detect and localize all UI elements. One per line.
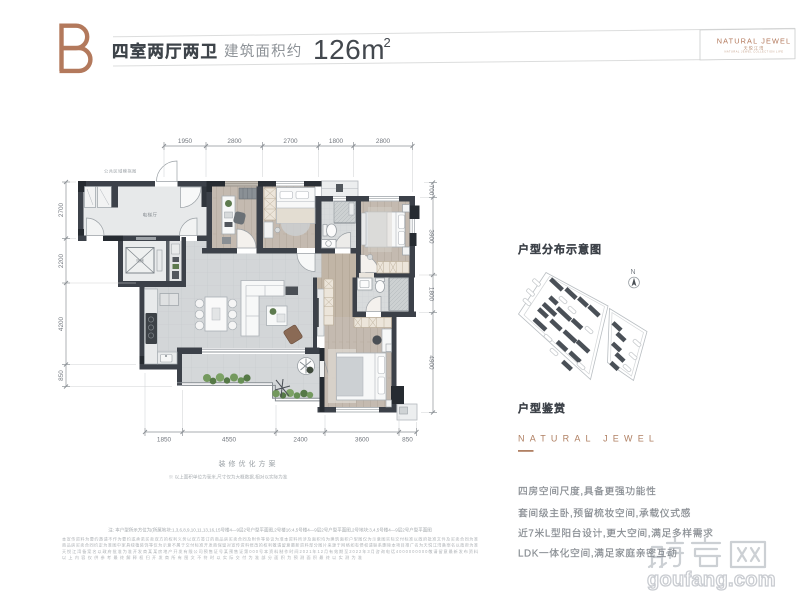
svg-text:NATURAL JEWEL: NATURAL JEWEL — [518, 434, 659, 444]
svg-text:700: 700 — [428, 185, 435, 196]
svg-text:N: N — [631, 269, 636, 276]
svg-text:注: 本户型所示方位为(所属地块:1,3,6,8,9,10,: 注: 本户型所示方位为(所属地块:1,3,6,8,9,10,11,13,16,1… — [108, 527, 432, 534]
svg-text:2700: 2700 — [58, 202, 65, 217]
svg-text:1850: 1850 — [157, 437, 172, 444]
svg-text:近7米L型阳台设计,更大空间,满足多样需求: 近7米L型阳台设计,更大空间,满足多样需求 — [518, 527, 714, 540]
svg-text:3600: 3600 — [355, 437, 370, 444]
svg-text:goufang.com: goufang.com — [647, 569, 776, 591]
svg-text:1950: 1950 — [178, 138, 193, 145]
svg-text:本宣传资料为要约邀请不作为要约或承诺买卖双方的权利义务以双方: 本宣传资料为要约邀请不作为要约或承诺买卖双方的权利义务以双方签订的商品房买卖合同… — [62, 536, 478, 542]
svg-text:※ 以上面积单位为毫米,尺寸仅为大概数据,相对以实际为准: ※ 以上面积单位为毫米,尺寸仅为大概数据,相对以实际为准 — [169, 474, 288, 481]
svg-text:电梯厅: 电梯厅 — [143, 212, 158, 219]
svg-text:电梯: 电梯 — [136, 258, 144, 263]
svg-text:四室两厅两卫: 四室两厅两卫 — [112, 41, 218, 61]
svg-text:850: 850 — [58, 370, 65, 381]
svg-text:850: 850 — [402, 437, 413, 444]
svg-text:套间级主卧,预留梳妆空间,承载仪式感: 套间级主卧,预留梳妆空间,承载仪式感 — [518, 507, 691, 520]
svg-text:商品房买卖合同约定为准图中家具绿植装饰等仅为示意不属于交付标: 商品房买卖合同约定为准图中家具绿植装饰等仅为示意不属于交付标准开发商保留对宣传资… — [62, 542, 478, 548]
svg-text:4200: 4200 — [58, 316, 65, 331]
svg-text:建筑面积约: 建筑面积约 — [224, 43, 303, 60]
svg-text:LDK一体化空间,满足家庭亲密互动: LDK一体化空间,满足家庭亲密互动 — [518, 547, 677, 560]
svg-text:4900: 4900 — [428, 355, 435, 370]
svg-text:3900: 3900 — [428, 229, 435, 244]
svg-text:2400: 2400 — [293, 437, 308, 444]
svg-text:2800: 2800 — [376, 138, 391, 145]
svg-text:户型鉴赏: 户型鉴赏 — [518, 401, 566, 415]
svg-text:四房空间尺度,具备更强功能性: 四房空间尺度,具备更强功能性 — [518, 485, 656, 498]
svg-text:2: 2 — [384, 35, 391, 50]
svg-text:天悦江湾备案名以政府批准为准开发商某某房地产开发有限公司预售: 天悦江湾备案名以政府批准为准开发商某某房地产开发有限公司预售证号某预售证第000… — [62, 548, 478, 554]
svg-text:装修优化方案: 装修优化方案 — [219, 459, 279, 468]
svg-text:4550: 4550 — [222, 437, 237, 444]
svg-text:2700: 2700 — [283, 138, 298, 145]
svg-text:NATURAL JEWEL: NATURAL JEWEL — [717, 37, 792, 46]
svg-text:户型分布示意图: 户型分布示意图 — [518, 242, 602, 256]
svg-text:2800: 2800 — [227, 138, 242, 145]
svg-text:公共区域模拟图: 公共区域模拟图 — [104, 168, 137, 175]
svg-text:1800: 1800 — [329, 138, 344, 145]
svg-text:1800: 1800 — [428, 287, 435, 302]
svg-text:NATURAL JEWEL COLLECTION LIFE: NATURAL JEWEL COLLECTION LIFE — [724, 50, 783, 54]
svg-text:126m: 126m — [313, 34, 385, 65]
svg-text:天悦江湾: 天悦江湾 — [744, 44, 765, 50]
svg-text:2200: 2200 — [58, 253, 65, 268]
